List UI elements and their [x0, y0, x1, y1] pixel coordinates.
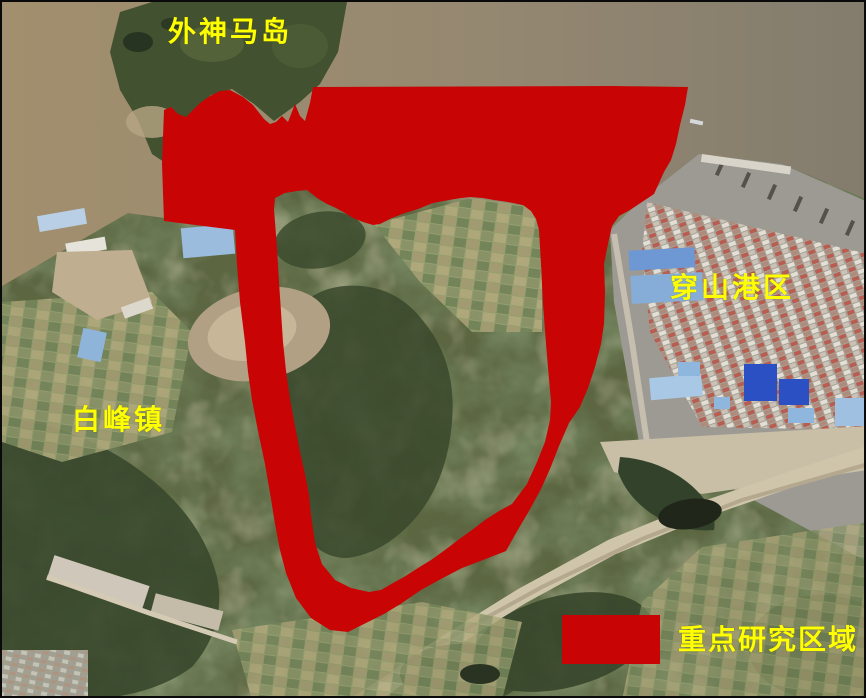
- legend-study-area-swatch: [562, 615, 660, 664]
- legend: 重点研究区域: [562, 615, 858, 664]
- label-waishenma-island: 外神马岛: [168, 18, 292, 46]
- legend-study-area-label: 重点研究区域: [678, 626, 858, 654]
- study-area-overlay: [2, 2, 866, 698]
- label-baifeng-town: 白峰镇: [72, 406, 165, 434]
- label-chuanshan-port: 穿山港区: [670, 274, 794, 302]
- map-viewport: 外神马岛 穿山港区 白峰镇 重点研究区域: [0, 0, 866, 698]
